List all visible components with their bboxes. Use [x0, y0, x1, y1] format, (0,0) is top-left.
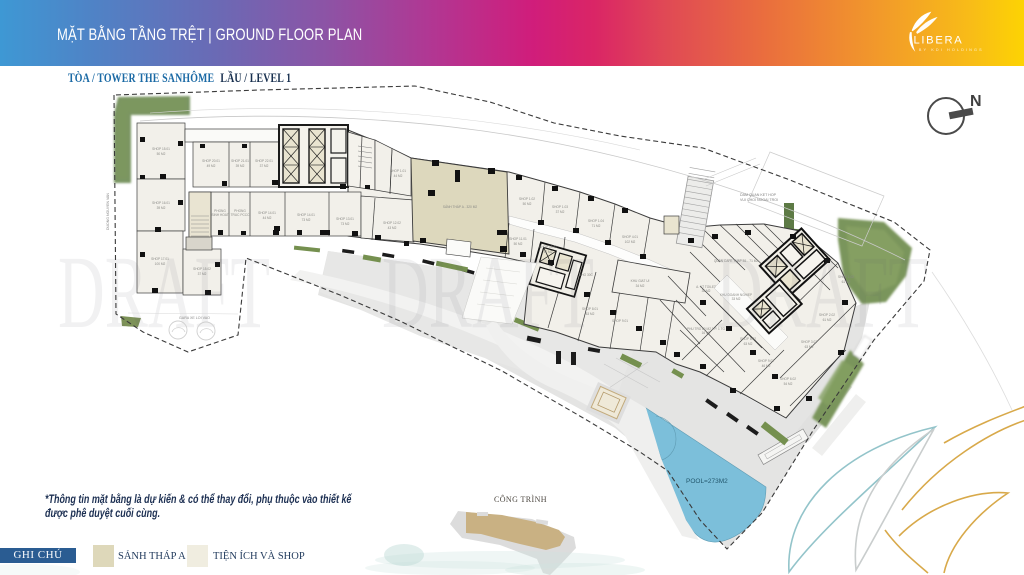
svg-text:SHOP 21.01: SHOP 21.01	[231, 159, 249, 163]
svg-text:DRAFT: DRAFT	[382, 235, 594, 350]
svg-text:37 M2: 37 M2	[556, 210, 565, 214]
svg-text:34 M2: 34 M2	[636, 284, 645, 288]
svg-text:SHOP 1.04: SHOP 1.04	[588, 219, 604, 223]
svg-text:SHOP 15.01: SHOP 15.01	[152, 147, 170, 151]
svg-text:CÔNG TRÌNH: CÔNG TRÌNH	[494, 494, 547, 504]
svg-text:102 M2: 102 M2	[625, 240, 636, 244]
svg-text:SHOP 22.01: SHOP 22.01	[255, 159, 273, 163]
svg-text:SHOP 20.01: SHOP 20.01	[202, 159, 220, 163]
svg-text:SHOP 1.03: SHOP 1.03	[552, 205, 568, 209]
svg-text:39 M2: 39 M2	[236, 164, 245, 168]
svg-text:SHOP 13.01: SHOP 13.01	[336, 217, 354, 221]
svg-text:36 M2: 36 M2	[702, 289, 711, 293]
svg-text:50 M2: 50 M2	[523, 202, 532, 206]
svg-text:50 M2: 50 M2	[157, 152, 166, 156]
svg-text:37 M2: 37 M2	[260, 164, 269, 168]
svg-text:SINH HOAT: SINH HOAT	[211, 213, 228, 217]
svg-text:N: N	[970, 93, 982, 110]
svg-text:54 M2: 54 M2	[784, 382, 793, 386]
svg-text:43 M2: 43 M2	[388, 226, 397, 230]
svg-text:49 M2: 49 M2	[207, 164, 216, 168]
svg-text:POOL=273M2: POOL=273M2	[686, 478, 728, 485]
svg-text:16 M2: 16 M2	[702, 331, 711, 335]
svg-text:SHOP 6.02: SHOP 6.02	[780, 377, 796, 381]
svg-text:DUONG NGUYEN VAN: DUONG NGUYEN VAN	[106, 193, 110, 230]
svg-text:LIBERA: LIBERA	[914, 35, 964, 47]
svg-text:SHOP 12.02: SHOP 12.02	[383, 221, 401, 225]
svg-text:46 M2: 46 M2	[762, 364, 771, 368]
svg-text:SHOP 14.01: SHOP 14.01	[297, 213, 315, 217]
svg-text:DAM QUAN KET HOP: DAM QUAN KET HOP	[740, 193, 777, 197]
svg-text:71 M2: 71 M2	[592, 224, 601, 228]
svg-text:SHOP 16.01: SHOP 16.01	[152, 201, 170, 205]
svg-text:SHOP 9.02: SHOP 9.02	[758, 359, 774, 363]
svg-text:SHOP 4.01: SHOP 4.01	[622, 235, 638, 239]
svg-text:KHU GIAT UI: KHU GIAT UI	[631, 279, 650, 283]
svg-text:73 M2: 73 M2	[341, 222, 350, 226]
svg-text:44 M2: 44 M2	[394, 174, 403, 178]
svg-text:SHOP 14.01: SHOP 14.01	[258, 211, 276, 215]
svg-text:SHOP 1.02: SHOP 1.02	[519, 197, 535, 201]
svg-text:44 M2: 44 M2	[263, 216, 272, 220]
svg-text:SẢNH THÁP A - 320 M2: SẢNH THÁP A - 320 M2	[443, 204, 477, 209]
svg-text:SHOP 1.01: SHOP 1.01	[390, 169, 406, 173]
svg-text:BY KDI HOLDINGS: BY KDI HOLDINGS	[919, 48, 984, 52]
svg-text:VUI CHOI NGOAI TROI: VUI CHOI NGOAI TROI	[740, 198, 778, 202]
svg-text:73 M2: 73 M2	[302, 218, 311, 222]
svg-text:39 M2: 39 M2	[157, 206, 166, 210]
svg-text:TRUC PCCC: TRUC PCCC	[231, 213, 250, 217]
svg-text:DRAFT: DRAFT	[716, 235, 928, 350]
svg-text:SHOP 9.01: SHOP 9.01	[612, 319, 628, 323]
svg-text:GARA XE LOI VAO: GARA XE LOI VAO	[179, 316, 210, 320]
